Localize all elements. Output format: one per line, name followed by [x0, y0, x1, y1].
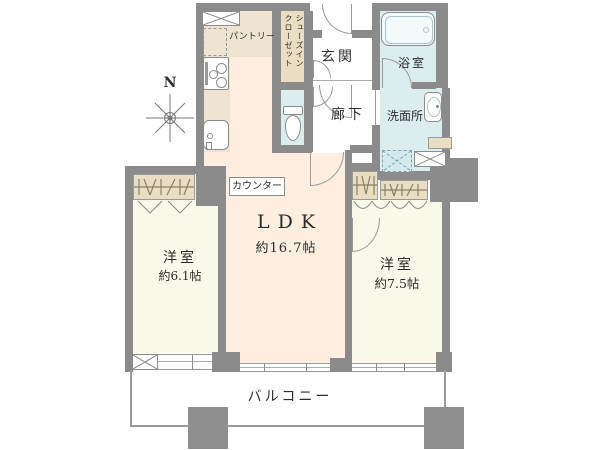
closet-bedroom-right-2 [380, 180, 428, 200]
refrigerator-space [202, 11, 240, 26]
door-arc-front-door [322, 4, 352, 34]
toilet [283, 106, 303, 146]
counter-box: カウンター [229, 177, 285, 196]
ldk-size-label: 約16.7帖 [229, 237, 343, 256]
toilet-bowl [285, 115, 301, 141]
kitchen-sink [203, 120, 229, 150]
wall [372, 171, 432, 180]
window-rail [240, 367, 330, 368]
window-rail [158, 361, 212, 362]
washroom-door-gap [372, 90, 380, 125]
bedroom-left-label: 洋室 [132, 247, 228, 267]
folding-door-icon [136, 200, 194, 215]
balcony-label: バルコニー [230, 386, 350, 406]
hanger-icon [353, 172, 377, 199]
stove-burner [209, 70, 218, 79]
closet-bedroom-right-1 [352, 171, 378, 200]
pipe-space-bedroom-left [132, 354, 158, 370]
hallway-label: 廊下 [326, 104, 370, 124]
x-mark-icon [415, 152, 445, 166]
wall [196, 3, 310, 11]
bedroom-left-size-label: 約6.1帖 [132, 267, 228, 284]
bedroom-right-size-label: 約7.5帖 [349, 273, 445, 292]
wall [412, 82, 436, 89]
wall [352, 163, 380, 171]
stove-grill [205, 62, 208, 85]
window-tick [192, 355, 193, 369]
wall [304, 30, 322, 38]
folding-door-icon [353, 200, 429, 218]
north-label: N [162, 75, 178, 91]
hanger-icon [134, 175, 194, 199]
wall [436, 352, 452, 372]
entrance-step-line [313, 80, 372, 81]
faucet-icon [207, 133, 213, 139]
fridge-dashed-space [203, 28, 227, 56]
hanger-icon [381, 181, 427, 199]
window-bedroom-left [158, 354, 212, 370]
balcony-pillar [424, 407, 464, 449]
wall [350, 145, 380, 153]
x-mark-icon [203, 12, 239, 25]
wall [278, 82, 306, 90]
stove [203, 57, 229, 90]
floor-plan: カウンター パントリー シューズイン クローゼット 玄関 浴室 廊下 洗面所 L… [0, 0, 600, 450]
shoes-closet-label: シューズイン クローゼット [281, 14, 305, 82]
wall [272, 145, 312, 153]
toilet-tank [283, 106, 303, 115]
washing-machine-pan [382, 150, 412, 172]
entrance-label: 玄関 [316, 46, 360, 66]
closet-bedroom-left [133, 174, 195, 200]
wall [212, 352, 240, 372]
storage-box [428, 137, 452, 149]
wall [436, 3, 448, 88]
washroom-label: 洗面所 [382, 107, 428, 124]
bathtub [381, 12, 435, 46]
ldk-label: LDK [229, 211, 343, 233]
x-mark-icon [133, 355, 157, 369]
counter-label: カウンター [230, 178, 284, 195]
pantry-label: パントリー [226, 31, 278, 43]
wall [272, 3, 281, 153]
stove-burner [216, 77, 227, 88]
wall [352, 30, 372, 38]
bathroom-label: 浴室 [390, 54, 434, 71]
pipe-space [414, 151, 446, 167]
wall [372, 11, 380, 90]
balcony-pillar [188, 407, 228, 449]
x-mark-icon [383, 151, 411, 171]
bedroom-right-label: 洋室 [349, 254, 445, 274]
washroom-door-line [375, 90, 376, 125]
wall [442, 88, 450, 160]
basin-faucet [436, 105, 439, 108]
window-rail [352, 367, 436, 368]
bathtub-drain [423, 27, 429, 33]
compass-icon [146, 94, 194, 142]
sink-handle [206, 142, 212, 150]
